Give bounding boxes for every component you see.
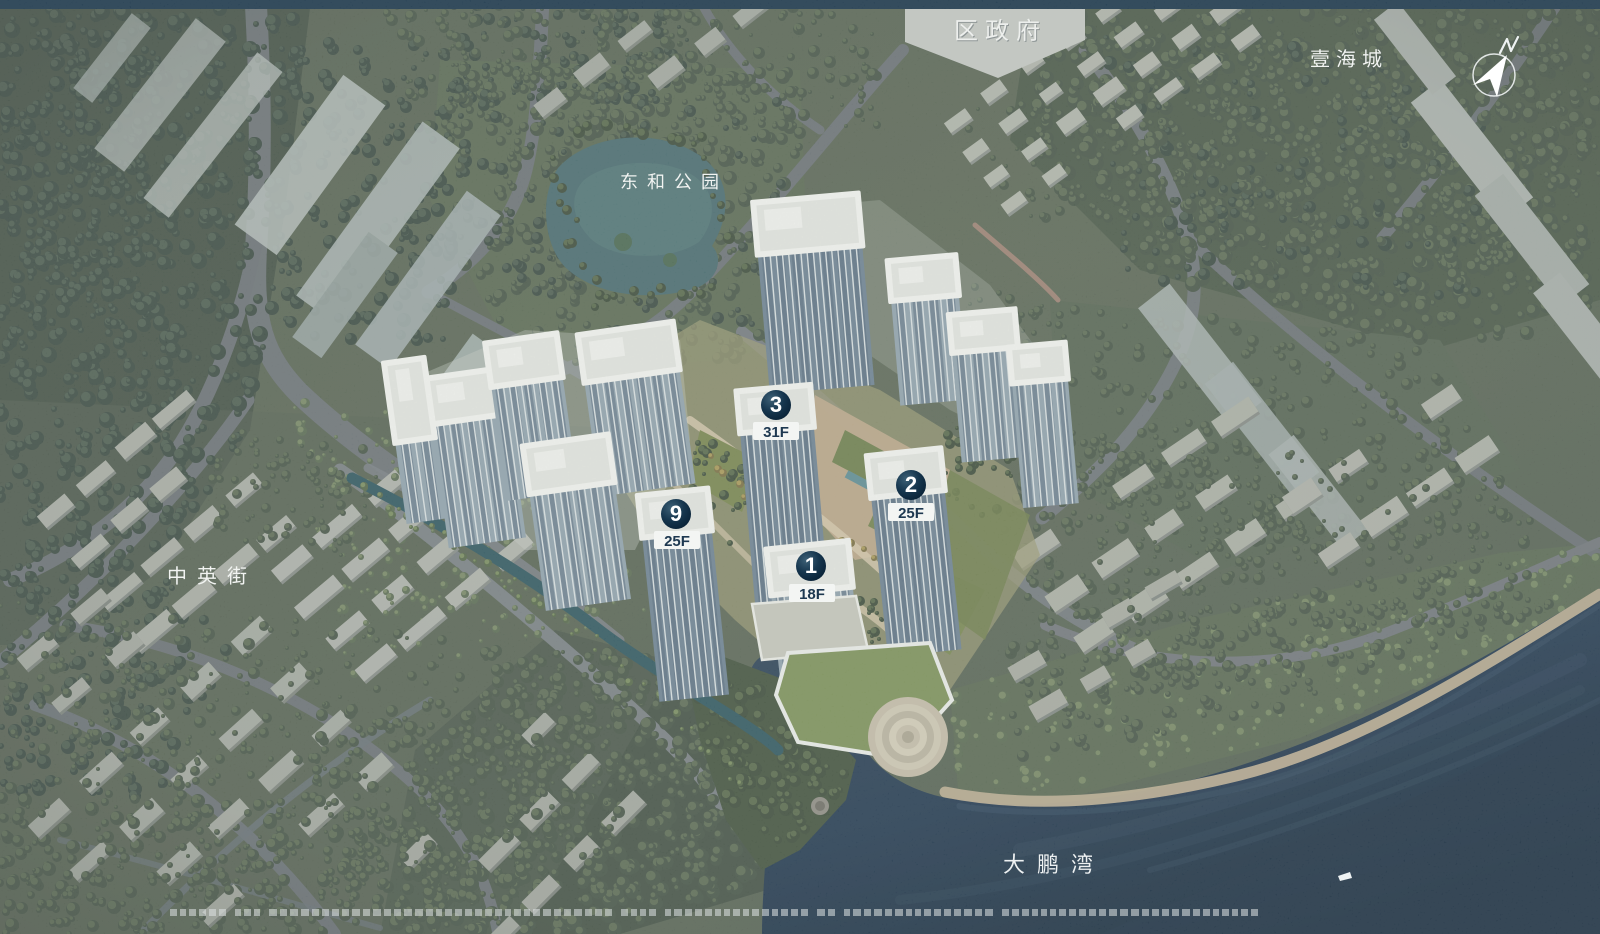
- svg-text:1: 1: [805, 553, 817, 578]
- svg-text:2: 2: [905, 472, 917, 497]
- svg-text:3: 3: [770, 392, 782, 417]
- svg-text:25F: 25F: [898, 505, 924, 522]
- svg-text:31F: 31F: [763, 424, 789, 441]
- svg-text:18F: 18F: [799, 586, 825, 603]
- svg-text:9: 9: [670, 501, 682, 526]
- svg-text:25F: 25F: [664, 533, 690, 550]
